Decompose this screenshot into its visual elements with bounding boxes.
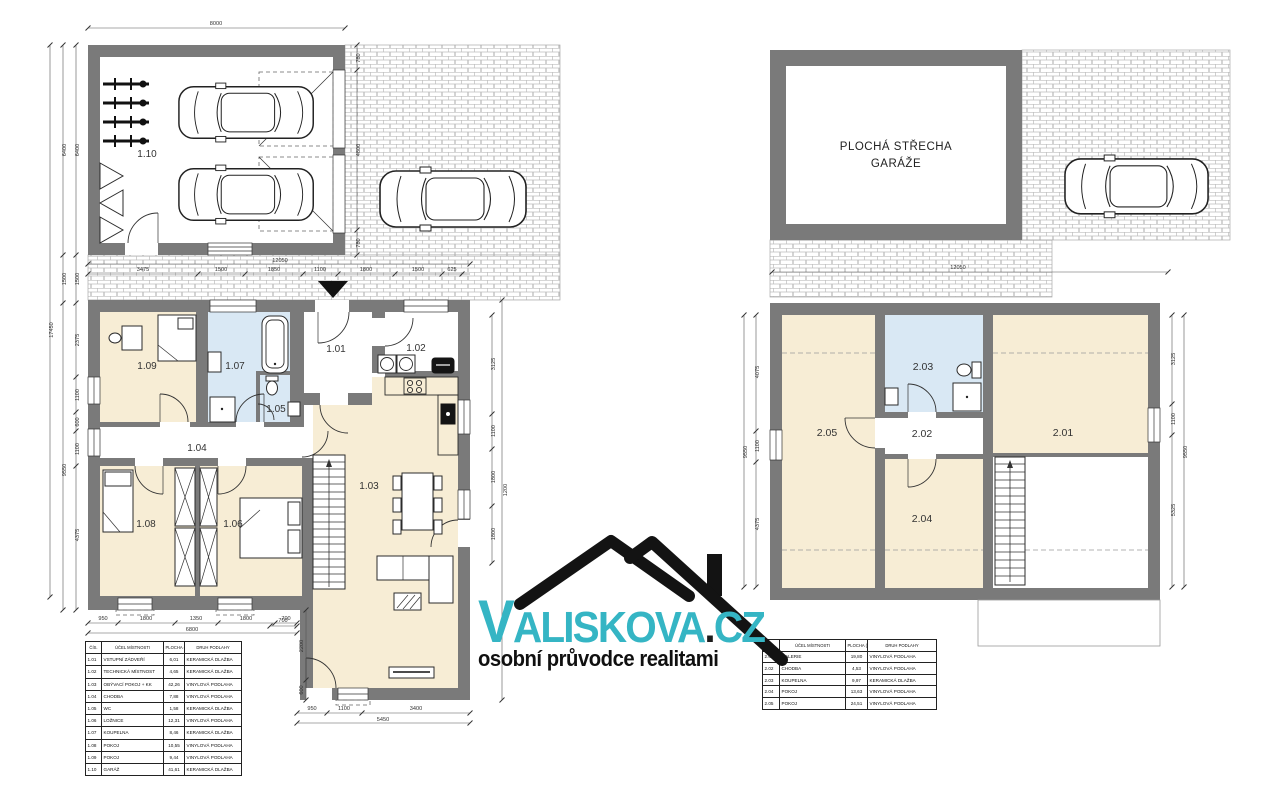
lower-roof-outline [978, 600, 1160, 646]
pillow [105, 472, 131, 486]
wardrobe [175, 468, 195, 526]
sink [885, 388, 898, 405]
toilet-tank [972, 362, 981, 378]
entry-door-opening [315, 300, 349, 312]
garage-roof [786, 66, 1006, 224]
svg-text:1500: 1500 [215, 267, 227, 273]
tv-board [389, 667, 434, 678]
roof-icon [630, 542, 782, 660]
table-cell: GALERIE [780, 651, 846, 663]
entrance-arrow-icon [318, 281, 348, 298]
table-row: 1.07KOUPELNA8,46KERAMICKÁ DLAŽBA [86, 727, 242, 739]
svg-text:3125: 3125 [491, 358, 497, 370]
room-2-02 [885, 418, 983, 454]
toilet [267, 381, 278, 395]
garage-roof-label: PLOCHÁ STŘECHA [840, 140, 952, 153]
col-number: ČÍS. [86, 642, 102, 654]
table-cell: 42,26 [164, 678, 185, 690]
table-row: 1.10GARÁŽ41,61KERAMICKÁ DLAŽBA [86, 763, 242, 775]
door-swing-arc [128, 213, 158, 243]
table-cell: 6,01 [164, 654, 185, 666]
garage-walls [88, 45, 345, 255]
chimney-icon [707, 554, 722, 596]
garage-door-swing [259, 72, 333, 146]
table-cell: KOUPELNA [102, 727, 164, 739]
plan2-upper-floor: PLOCHÁ STŘECHA GARÁŽE 2.01 2.02 [742, 50, 1231, 646]
room-label: 1.02 [406, 343, 426, 354]
svg-text:1850: 1850 [268, 267, 280, 273]
table-cell: POKOJ [102, 751, 164, 763]
table-cell: 4,53 [846, 663, 868, 675]
chair [434, 498, 442, 512]
table-cell: VINYLOVÁ PODLAHA [185, 751, 242, 763]
paving-area [88, 255, 560, 300]
table-row: 1.04CHODBA7,88VINYLOVÁ PODLAHA [86, 690, 242, 702]
table-cell: 1.06 [86, 715, 102, 727]
col-floor-type: DRUH PODLAHY [185, 642, 242, 654]
room-tech [385, 312, 458, 371]
table-cell: 2.05 [763, 697, 780, 709]
svg-text:5450: 5450 [377, 717, 389, 723]
chair [393, 498, 401, 512]
brand-name: ALISKOVA [513, 603, 704, 652]
wardrobe [200, 468, 217, 526]
svg-text:600: 600 [299, 685, 305, 694]
door-opening [125, 243, 158, 255]
table-cell: VINYLOVÁ PODLAHA [185, 739, 242, 751]
svg-text:2375: 2375 [75, 334, 81, 346]
svg-text:12050: 12050 [950, 265, 966, 271]
table-cell: CHODBA [780, 663, 846, 675]
garage-floor [100, 57, 333, 243]
table-cell: POKOJ [102, 739, 164, 751]
table-row: 2.05POKOJ24,51VINYLOVÁ PODLAHA [763, 697, 937, 709]
room-1-08 [100, 466, 195, 596]
room-2-04 [885, 459, 983, 588]
room-2-03 [885, 315, 983, 415]
chair [434, 476, 442, 490]
svg-text:1100: 1100 [314, 267, 326, 273]
svg-text:1500: 1500 [412, 267, 424, 273]
watermark-tagline: osobní průvodce realitami [478, 646, 764, 672]
wardrobe [200, 528, 217, 586]
plan2-dimensions: 12050 9550 4075 1100 4375 3125 1100 5325… [742, 265, 1190, 590]
room-1-09 [100, 312, 196, 422]
svg-text:1100: 1100 [338, 706, 350, 712]
toilet-tank [266, 376, 278, 381]
room-label: 1.07 [225, 361, 245, 372]
svg-text:12050: 12050 [272, 258, 288, 264]
table-row: 1.08POKOJ10,55VINYLOVÁ PODLAHA [86, 739, 242, 751]
garage-door-swing [259, 157, 333, 231]
table-cell: 1.05 [86, 702, 102, 714]
table-cell: VINYLOVÁ PODLAHA [868, 686, 937, 698]
svg-text:780: 780 [356, 53, 362, 62]
table-header-row: ČÍS. ÚČEL MÍSTNOSTI PLOCHA (m2) DRUH POD… [86, 642, 242, 654]
svg-text:5325: 5325 [1171, 504, 1177, 516]
room-label: 1.09 [137, 361, 157, 372]
table-cell: 9,97 [846, 674, 868, 686]
roof-icon [520, 541, 689, 604]
room-living [313, 377, 458, 688]
stairs [313, 455, 345, 589]
room-label: 1.08 [136, 519, 156, 530]
table-cell: 4,65 [164, 666, 185, 678]
table-cell: WC [102, 702, 164, 714]
pillow [288, 502, 300, 525]
door-opening [306, 688, 332, 700]
boiler [432, 358, 454, 373]
table-cell: KERAMICKÁ DLAŽBA [185, 763, 242, 775]
dining-table [402, 473, 433, 530]
stair-void [993, 457, 1148, 588]
svg-text:4800: 4800 [356, 144, 362, 156]
paving-area [345, 45, 560, 255]
table-cell: VINYLOVÁ PODLAHA [185, 715, 242, 727]
table-cell: 1.03 [86, 678, 102, 690]
svg-text:1500: 1500 [75, 273, 81, 285]
svg-text:950: 950 [307, 706, 316, 712]
room-label: 1.03 [359, 481, 379, 492]
floor1-legend-table: ČÍS. ÚČEL MÍSTNOSTI PLOCHA (m2) DRUH POD… [85, 641, 242, 776]
svg-text:700: 700 [278, 618, 287, 624]
table-header-row: ČÍS. ÚČEL MÍSTNOSTI PLOCHA (m2) DRUH POD… [763, 640, 937, 652]
chair [109, 333, 121, 343]
table-cell: KERAMICKÁ DLAŽBA [185, 702, 242, 714]
watermark-brand: VALISKOVA.CZ [478, 592, 764, 652]
bed [158, 315, 196, 361]
table-cell: OBÝVACÍ POKOJ + KK [102, 678, 164, 690]
sink [288, 402, 300, 416]
table-cell: KERAMICKÁ DLAŽBA [185, 727, 242, 739]
shower [953, 383, 981, 411]
table-cell: VSTUPNÍ ZÁDVEŘÍ [102, 654, 164, 666]
table-row: 1.03OBÝVACÍ POKOJ + KK42,26VINYLOVÁ PODL… [86, 678, 242, 690]
table-cell: VINYLOVÁ PODLAHA [868, 663, 937, 675]
room-2-01 [993, 315, 1148, 455]
desk [122, 326, 142, 350]
svg-text:6800: 6800 [186, 627, 198, 633]
svg-text:9550: 9550 [1183, 446, 1189, 458]
shelf-icon [100, 217, 123, 243]
stairs [995, 457, 1025, 585]
svg-text:6400: 6400 [75, 144, 81, 156]
svg-text:4375: 4375 [755, 518, 761, 530]
bathtub [262, 316, 288, 373]
table-cell: 1.02 [86, 666, 102, 678]
paving-area [770, 240, 1052, 297]
room-label: 2.05 [817, 427, 838, 439]
table-cell: 10,55 [164, 739, 185, 751]
plan1-ground-floor: 1.01 1.02 1.03 1.04 1.05 1.06 1.07 1.08 … [48, 21, 561, 726]
floor2-legend-table: ČÍS. ÚČEL MÍSTNOSTI PLOCHA (m2) DRUH POD… [762, 639, 937, 710]
room-label: 2.02 [912, 428, 933, 440]
door-opening [458, 520, 470, 547]
table-cell: KERAMICKÁ DLAŽBA [868, 674, 937, 686]
room-hall [100, 427, 302, 458]
svg-text:1500: 1500 [62, 273, 68, 285]
table-cell: 1.09 [86, 751, 102, 763]
upper-floor-walls [770, 303, 1160, 600]
svg-text:1100: 1100 [75, 389, 81, 401]
table-cell: KOUPELNA [780, 674, 846, 686]
table-cell: 1.08 [86, 739, 102, 751]
garage-door-opening [333, 70, 345, 148]
table-cell: 41,61 [164, 763, 185, 775]
chair [393, 476, 401, 490]
table-row: 2.02CHODBA4,53VINYLOVÁ PODLAHA [763, 663, 937, 675]
svg-text:1800: 1800 [140, 616, 152, 622]
table-cell: 1.07 [86, 727, 102, 739]
garage-roof-label: GARÁŽE [871, 157, 921, 170]
svg-text:17450: 17450 [49, 322, 55, 338]
room-label: 2.01 [1053, 427, 1074, 439]
kitchen-counter [385, 377, 458, 395]
shower [210, 397, 235, 422]
room-1-06 [200, 466, 302, 596]
toilet [957, 364, 971, 376]
wardrobe [175, 528, 195, 586]
svg-text:8000: 8000 [210, 21, 222, 27]
svg-text:1800: 1800 [240, 616, 252, 622]
table-cell: 1.04 [86, 690, 102, 702]
table-cell: TECHNICKÁ MÍSTNOST [102, 666, 164, 678]
sofa-chaise [429, 556, 453, 603]
sofa [377, 556, 453, 580]
room-label: 2.03 [913, 361, 934, 373]
garage-door-opening [333, 155, 345, 233]
table-cell: 12,31 [164, 715, 185, 727]
table-cell: 19,80 [846, 651, 868, 663]
stove [404, 378, 426, 394]
table-cell: POKOJ [780, 697, 846, 709]
table-cell: 9,44 [164, 751, 185, 763]
table-cell: GARÁŽ [102, 763, 164, 775]
table-cell: 13,63 [846, 686, 868, 698]
table-cell: 8,46 [164, 727, 185, 739]
garage-roof-border [770, 50, 1022, 240]
room-entry [304, 312, 372, 393]
svg-text:2200: 2200 [299, 640, 305, 652]
svg-text:6400: 6400 [62, 144, 68, 156]
svg-text:3475: 3475 [137, 267, 149, 273]
plan1-dimensions: 8000 17450 6400 1500 9550 6400 1500 2375… [48, 21, 510, 726]
room-label: 1.06 [223, 519, 243, 530]
paving-area [1022, 50, 1230, 240]
svg-text:1100: 1100 [1171, 413, 1177, 425]
room-2-05 [782, 315, 875, 588]
svg-text:700: 700 [281, 616, 290, 622]
svg-text:3400: 3400 [410, 706, 422, 712]
table-cell: 2.02 [763, 663, 780, 675]
room-label: 1.10 [137, 149, 157, 160]
table-row: 1.01VSTUPNÍ ZÁDVEŘÍ6,01KERAMICKÁ DLAŽBA [86, 654, 242, 666]
table-cell: 24,51 [846, 697, 868, 709]
watermark: VALISKOVA.CZ osobní průvodce realitami [478, 592, 764, 672]
svg-text:1200: 1200 [503, 484, 509, 496]
room-label: 1.01 [326, 344, 346, 355]
table-cell: 1,58 [164, 702, 185, 714]
room-label: 1.04 [187, 443, 207, 454]
brand-tld: CZ [714, 603, 764, 652]
svg-text:9550: 9550 [62, 464, 68, 476]
col-floor-type: DRUH PODLAHY [868, 640, 937, 652]
table-row: 1.02TECHNICKÁ MÍSTNOST4,65KERAMICKÁ DLAŽ… [86, 666, 242, 678]
table-cell: LOŽNICE [102, 715, 164, 727]
svg-text:1100: 1100 [75, 443, 81, 455]
table-cell: VINYLOVÁ PODLAHA [185, 690, 242, 702]
table-cell: VINYLOVÁ PODLAHA [185, 678, 242, 690]
washer [378, 355, 396, 373]
table-cell: 2.01 [763, 651, 780, 663]
table-row: 1.09POKOJ9,44VINYLOVÁ PODLAHA [86, 751, 242, 763]
double-bed [240, 498, 302, 558]
chair [393, 520, 401, 534]
table-cell: 1.10 [86, 763, 102, 775]
table-row: 1.06LOŽNICE12,31VINYLOVÁ PODLAHA [86, 715, 242, 727]
shelf-icon [100, 190, 123, 216]
table-cell: CHODBA [102, 690, 164, 702]
table-cell: 2.04 [763, 686, 780, 698]
svg-text:1100: 1100 [755, 440, 761, 452]
svg-text:600: 600 [75, 417, 81, 426]
table-cell: POKOJ [780, 686, 846, 698]
svg-text:1100: 1100 [491, 425, 497, 437]
kitchen-counter [438, 395, 458, 455]
shelf-icon [100, 163, 123, 189]
svg-text:4075: 4075 [755, 366, 761, 378]
table-row: 2.04POKOJ13,63VINYLOVÁ PODLAHA [763, 686, 937, 698]
table-cell: VINYLOVÁ PODLAHA [868, 697, 937, 709]
svg-text:625: 625 [447, 267, 456, 273]
bed [103, 470, 133, 532]
svg-text:1800: 1800 [360, 267, 372, 273]
window [208, 243, 252, 255]
svg-text:4375: 4375 [75, 529, 81, 541]
pillow [178, 318, 193, 329]
svg-text:1800: 1800 [491, 471, 497, 483]
room-label: 1.05 [266, 404, 286, 415]
room-label: 2.04 [912, 513, 933, 525]
col-room: ÚČEL MÍSTNOSTI [780, 640, 846, 652]
pillow [288, 530, 300, 553]
svg-text:3125: 3125 [1171, 353, 1177, 365]
coffee-table [394, 593, 421, 610]
floorplan-drawing: 1.01 1.02 1.03 1.04 1.05 1.06 1.07 1.08 … [0, 0, 1276, 785]
table-cell: 7,88 [164, 690, 185, 702]
svg-text:950: 950 [98, 616, 107, 622]
room-bath [208, 312, 290, 422]
brand-dot: . [704, 603, 713, 652]
dryer [397, 355, 415, 373]
svg-text:9550: 9550 [743, 446, 749, 458]
svg-text:780: 780 [356, 238, 362, 247]
chair [434, 520, 442, 534]
col-area: PLOCHA (m2) [846, 640, 868, 652]
col-room: ÚČEL MÍSTNOSTI [102, 642, 164, 654]
table-row: 2.01GALERIE19,80VINYLOVÁ PODLAHA [763, 651, 937, 663]
svg-text:1800: 1800 [491, 528, 497, 540]
brand-initial: V [478, 588, 513, 655]
table-cell: KERAMICKÁ DLAŽBA [185, 654, 242, 666]
svg-text:1350: 1350 [190, 616, 202, 622]
kitchen-sink [441, 404, 455, 424]
col-area: PLOCHA (m2) [164, 642, 185, 654]
table-cell: 2.03 [763, 674, 780, 686]
table-row: 1.05WC1,58KERAMICKÁ DLAŽBA [86, 702, 242, 714]
sink [208, 352, 221, 372]
col-number: ČÍS. [763, 640, 780, 652]
table-cell: VINYLOVÁ PODLAHA [868, 651, 937, 663]
table-cell: 1.01 [86, 654, 102, 666]
table-row: 2.03KOUPELNA9,97KERAMICKÁ DLAŽBA [763, 674, 937, 686]
table-cell: KERAMICKÁ DLAŽBA [185, 666, 242, 678]
